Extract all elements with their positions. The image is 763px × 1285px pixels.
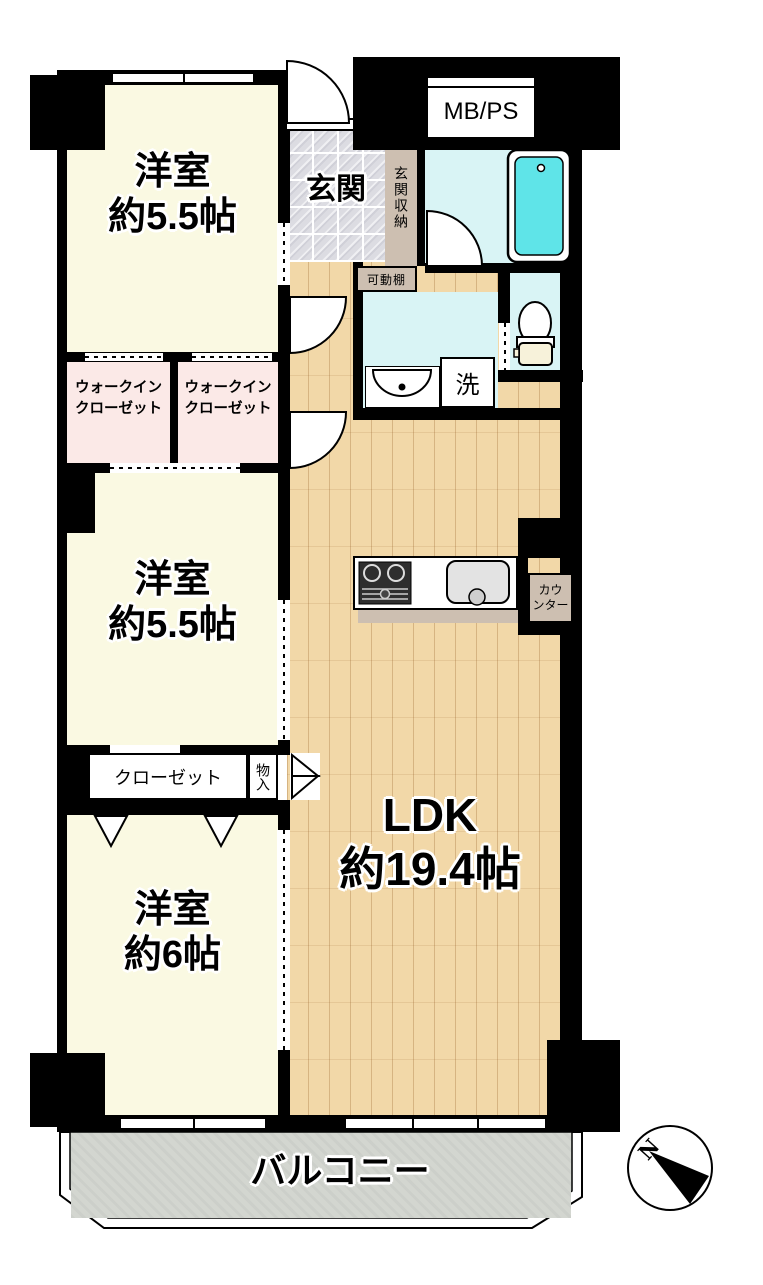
wall-segment (67, 473, 95, 533)
toilet-floor (510, 273, 560, 370)
wall-segment (498, 370, 583, 382)
wall-segment (278, 285, 290, 362)
movable-shelf-label: 可動棚 (367, 271, 406, 288)
wall-pillar-top-left (30, 75, 105, 150)
entrance-label: 玄関 (287, 172, 385, 207)
kitchen-base (358, 610, 518, 623)
entrance-storage-label: 玄関収納 (385, 134, 417, 262)
counter-label-line2: ンター (530, 598, 571, 613)
wall-left (57, 85, 67, 1132)
wall-segment (278, 362, 290, 600)
ldk-label: LDK 約19.4帖 (287, 788, 573, 897)
bedroom1-label: 洋室 約5.5帖 (67, 150, 278, 240)
wall-segment (417, 148, 425, 266)
wall-segment (518, 623, 560, 635)
storage-label: 物入 (253, 763, 273, 791)
wall-pillar-bottom-right (547, 1040, 620, 1132)
wall-segment (57, 753, 88, 800)
laundry-box: 洗 (440, 357, 495, 408)
wic2-line1: ウォークイン (178, 378, 278, 399)
laundry-label: 洗 (456, 365, 480, 400)
bedroom3-name: 洋室 (67, 888, 278, 933)
sliding-door-bedroom2 (277, 600, 290, 740)
window-bedroom3 (121, 1117, 265, 1130)
wall-segment (498, 273, 510, 323)
window-bedroom1 (113, 72, 253, 84)
bedroom1-area: 約5.5帖 (67, 195, 278, 240)
entrance-threshold (287, 118, 353, 131)
vanity-sink (365, 366, 440, 408)
wall-right (560, 148, 582, 1115)
wic1-line1: ウォークイン (67, 378, 170, 399)
window-ldk (346, 1117, 545, 1130)
floor-plan: MB/PS 可動棚 洗 カウ ンター クローゼット 物入 (0, 0, 763, 1285)
sliding-door-bedroom1 (277, 223, 290, 285)
balcony-text: バルコニー (250, 1150, 429, 1191)
wic2-opening (192, 353, 272, 361)
wall-segment (57, 800, 290, 815)
wall-segment (170, 352, 178, 463)
bedroom2-name: 洋室 (67, 558, 278, 603)
wic2-label: ウォークイン クローゼット (178, 378, 278, 420)
counter-label-line1: カウ (530, 583, 571, 598)
bedroom2-closet-opening (110, 745, 180, 753)
balcony-label: バルコニー (110, 1150, 570, 1192)
closet-box: クローゼット (88, 753, 248, 800)
bathroom-floor (425, 148, 560, 263)
bedroom3-label: 洋室 約6帖 (67, 888, 278, 978)
wall-segment (425, 263, 573, 273)
counter-box: カウ ンター (528, 573, 573, 623)
wic-bedroom2-opening (110, 463, 240, 473)
kitchen-counter (353, 556, 518, 610)
wic1-opening (85, 353, 163, 361)
closet-label: クローゼット (114, 764, 222, 790)
bedroom2-label: 洋室 約5.5帖 (67, 558, 278, 648)
ldk-area: 約19.4帖 (287, 842, 573, 896)
entrance-name: 玄関 (306, 173, 366, 206)
sliding-door-toilet (499, 323, 510, 370)
entrance-storage-text: 玄関収納 (391, 166, 411, 230)
wall-segment (353, 408, 573, 420)
mb-ps-label: MB/PS (428, 86, 534, 137)
bedroom3-area: 約6帖 (67, 933, 278, 978)
ldk-name: LDK (287, 788, 573, 842)
wic1-line2: クローゼット (67, 399, 170, 420)
movable-shelf-box: 可動棚 (356, 266, 417, 292)
wic1-label: ウォークイン クローゼット (67, 378, 170, 420)
wall-segment (518, 518, 560, 558)
bedroom1-name: 洋室 (67, 150, 278, 195)
bedroom2-area: 約5.5帖 (67, 603, 278, 648)
wic2-line2: クローゼット (178, 399, 278, 420)
storage-box: 物入 (248, 753, 278, 800)
mb-ps-box: MB/PS (425, 75, 537, 140)
